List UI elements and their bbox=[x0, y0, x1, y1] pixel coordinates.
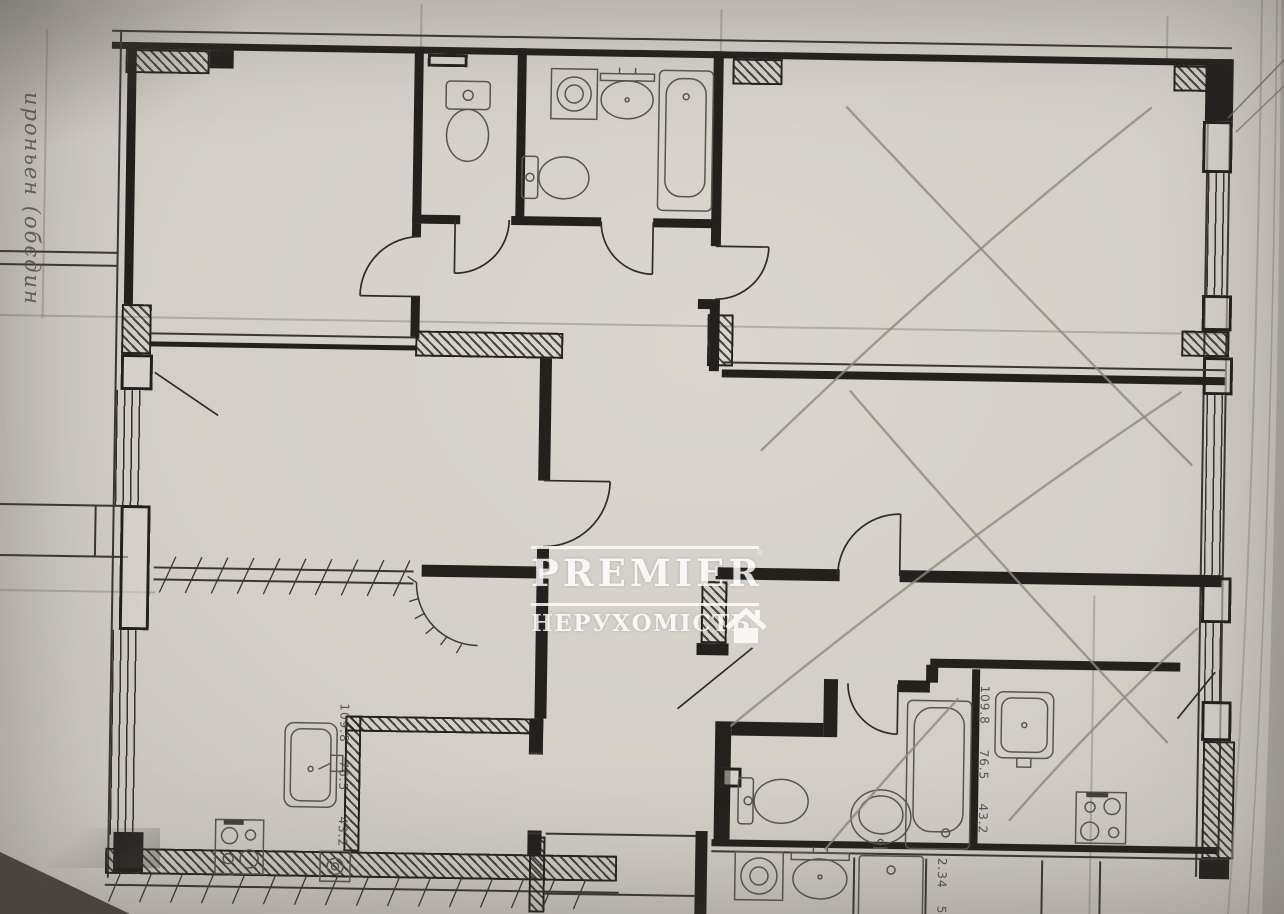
bath-sink-icon bbox=[600, 67, 655, 119]
washing-machine-icon bbox=[551, 69, 598, 120]
bathtub-2-icon bbox=[905, 700, 971, 849]
pencil-x-marks bbox=[729, 102, 1205, 855]
house-icon bbox=[723, 606, 769, 646]
door-swing-arcs bbox=[149, 214, 1222, 739]
shower-tray-icon bbox=[858, 856, 923, 914]
watermark-rule-top bbox=[531, 546, 759, 549]
door-leaf bbox=[678, 647, 753, 710]
stove-2-icon bbox=[1076, 792, 1127, 844]
watermark-brand: PREMIER bbox=[531, 551, 763, 595]
stove-icon bbox=[215, 819, 264, 874]
door-leaf bbox=[154, 372, 219, 415]
dimension-label: 109.8 bbox=[977, 685, 992, 725]
floor-plan: 109.8 76.5 43.2 109.8 76.5 43.2 2.34 5 bbox=[0, 0, 1284, 914]
dimension-label: 76.5 bbox=[336, 760, 350, 791]
dimension-label: 76.5 bbox=[976, 749, 990, 780]
kitchen-sink-2-icon bbox=[995, 692, 1054, 768]
washing-machine-2-icon bbox=[735, 852, 784, 901]
registered-mark: ® bbox=[755, 548, 765, 559]
bathroom2-toilet-icon bbox=[738, 778, 809, 825]
bathtub-icon bbox=[657, 70, 713, 211]
dimension-label: 43.2 bbox=[335, 816, 349, 847]
oval-sink-icon bbox=[791, 846, 850, 899]
kitchen-sink-icon bbox=[284, 723, 343, 808]
wc-toilet-icon bbox=[445, 81, 490, 162]
bath-toilet-icon bbox=[522, 156, 590, 199]
dimension-label: 109.8 bbox=[337, 703, 352, 743]
door-leaf bbox=[1177, 672, 1215, 720]
plan-overlay bbox=[0, 0, 1284, 914]
watermark-subtitle: НЕРУХОМІСТЬ bbox=[531, 610, 751, 637]
demolition-arc bbox=[406, 576, 478, 653]
round-sink-icon bbox=[850, 789, 911, 848]
gas-riser-icon bbox=[320, 851, 350, 881]
dimension-label: 5 bbox=[934, 906, 948, 914]
handwritten-note: ироньен (обєдин bbox=[20, 92, 44, 324]
photo-background: 109.8 76.5 43.2 109.8 76.5 43.2 2.34 5 и… bbox=[0, 0, 1284, 914]
dimension-label: 43.2 bbox=[976, 803, 990, 834]
dimension-label: 2.34 bbox=[935, 858, 949, 889]
